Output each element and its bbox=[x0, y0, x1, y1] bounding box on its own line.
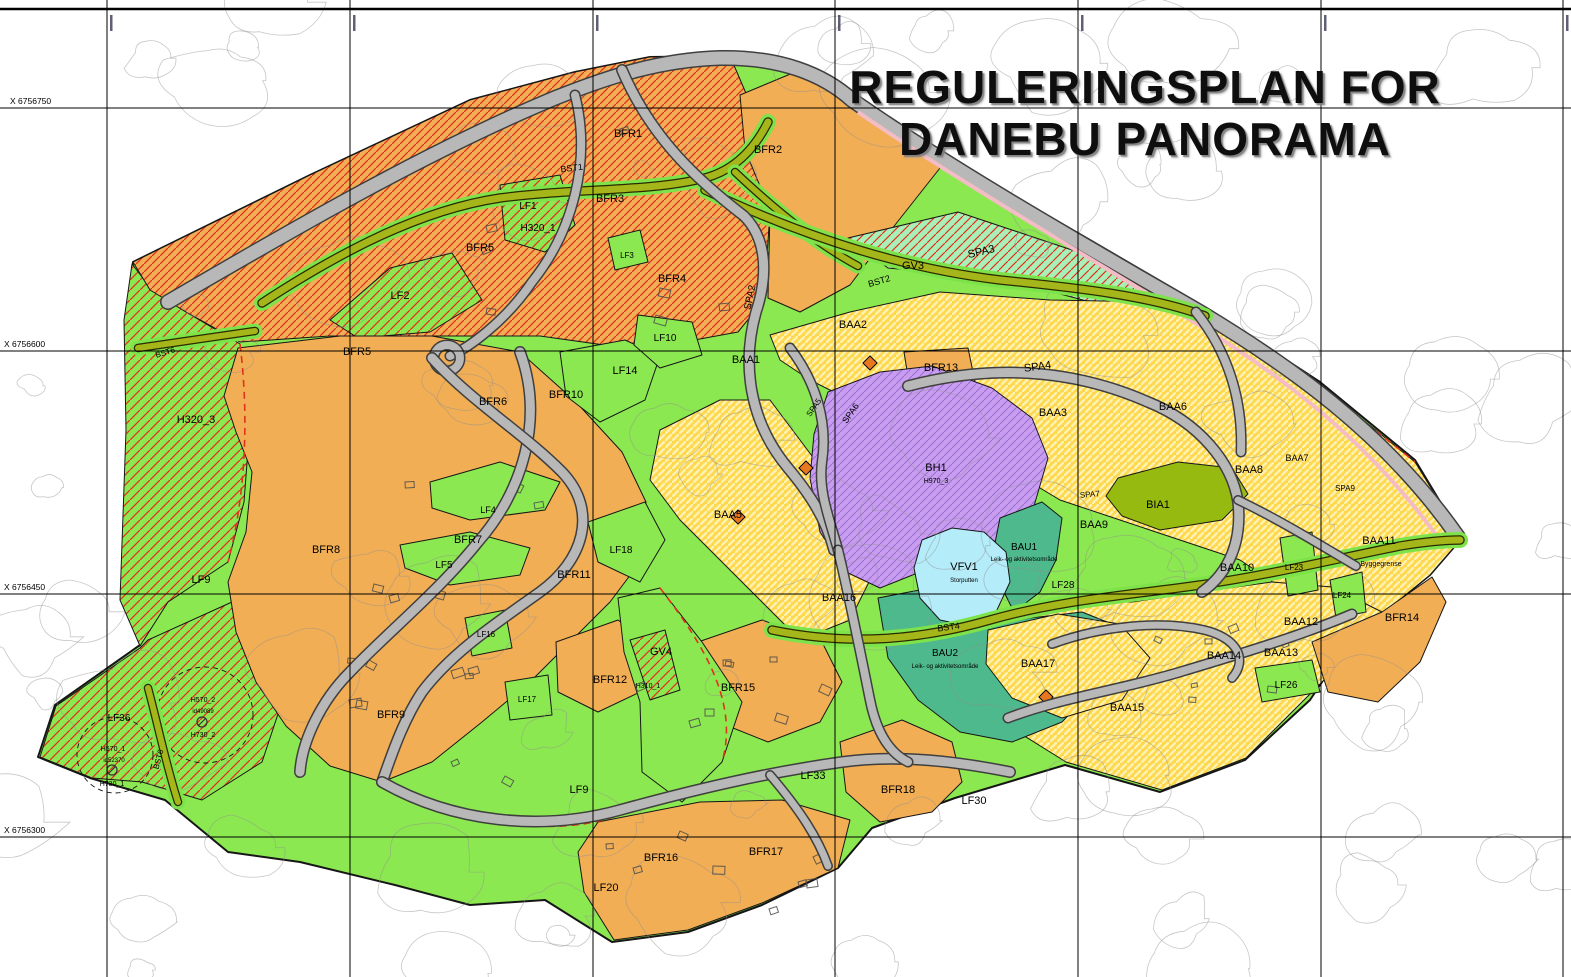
map-label: BFR5 bbox=[466, 242, 494, 254]
map-label: LF2 bbox=[391, 290, 410, 302]
map-label: id49089 bbox=[192, 709, 214, 715]
map-label: Storputten bbox=[950, 578, 978, 584]
map-label: BAA9 bbox=[1080, 519, 1108, 531]
map-label: H570_1 bbox=[101, 746, 126, 753]
map-label: BH1 bbox=[925, 462, 946, 474]
map-label: BAA7 bbox=[1285, 453, 1308, 463]
coordinate-tick bbox=[1081, 15, 1084, 31]
map-label: BAA13 bbox=[1264, 647, 1298, 659]
map-label: LF17 bbox=[518, 695, 537, 704]
map-label: LF1 bbox=[519, 201, 537, 212]
map-label: BFR2 bbox=[754, 144, 782, 156]
map-label: H320_3 bbox=[177, 414, 216, 426]
coordinate-tick bbox=[838, 15, 841, 31]
map-label: H730_1 bbox=[100, 781, 125, 788]
map-label: BAA14 bbox=[1207, 650, 1241, 662]
map-label: LF5 bbox=[435, 560, 453, 571]
coordinate-tick bbox=[1566, 15, 1569, 31]
map-label: BFR16 bbox=[644, 852, 678, 864]
map-label: LF10 bbox=[654, 333, 677, 344]
map-label: BAA8 bbox=[1235, 464, 1263, 476]
map-label: H730_2 bbox=[191, 732, 216, 739]
map-label: BFR13 bbox=[924, 362, 958, 374]
grid-coordinate-label: X 6756450 bbox=[4, 582, 45, 592]
map-canvas: X 6756750X 6756600X 6756450X 6756300 BFR… bbox=[0, 0, 1571, 977]
map-label: LF33 bbox=[800, 770, 825, 782]
map-label: BAA17 bbox=[1021, 658, 1055, 670]
map-label: Byggegrense bbox=[1360, 561, 1401, 568]
grid-coordinate-label: X 6756300 bbox=[4, 825, 45, 835]
map-label: BFR14 bbox=[1385, 612, 1419, 624]
map-label: BFR7 bbox=[454, 534, 482, 546]
map-label: BAA3 bbox=[1039, 407, 1067, 419]
coordinate-tick bbox=[1324, 15, 1327, 31]
map-label: BAU2 bbox=[932, 648, 959, 659]
map-label: BFR15 bbox=[721, 682, 755, 694]
map-label: LF18 bbox=[610, 545, 633, 556]
map-label: BFR5 bbox=[343, 346, 371, 358]
map-label: BAA5 bbox=[714, 509, 742, 521]
map-label: LF14 bbox=[612, 365, 637, 377]
map-label: LF16 bbox=[477, 630, 496, 639]
map-label: BAA11 bbox=[1362, 535, 1395, 547]
map-label: H570_2 bbox=[191, 697, 216, 704]
map-label: LF4 bbox=[480, 505, 496, 515]
map-label: BFR3 bbox=[596, 193, 624, 205]
map-label: BFR11 bbox=[557, 569, 590, 581]
map-label: LF9 bbox=[192, 574, 211, 586]
map-label: BFR18 bbox=[881, 784, 915, 796]
map-label: LF26 bbox=[1275, 680, 1298, 691]
map-label: BFR8 bbox=[312, 544, 340, 556]
map-label: BAA12 bbox=[1284, 616, 1318, 628]
map-label: LF23 bbox=[1285, 563, 1304, 572]
map-label: BIA1 bbox=[1146, 499, 1170, 511]
map-label: BFR12 bbox=[593, 674, 627, 686]
map-label: H970_3 bbox=[924, 478, 949, 485]
map-label: BFR1 bbox=[614, 128, 642, 140]
map-label: BAA15 bbox=[1110, 702, 1144, 714]
map-label: LF3 bbox=[620, 251, 634, 260]
map-label: BAA6 bbox=[1159, 401, 1187, 413]
coordinate-tick bbox=[596, 15, 599, 31]
map-label: BFR9 bbox=[377, 709, 405, 721]
grid-coordinate-label: X 6756750 bbox=[10, 96, 51, 106]
map-label: BAA1 bbox=[732, 354, 760, 366]
map-label: VFV1 bbox=[950, 561, 978, 573]
map-label: BAU1 bbox=[1011, 542, 1038, 553]
map-label: BFR17 bbox=[749, 846, 783, 858]
map-label: BFR10 bbox=[549, 389, 583, 401]
map-label: BAA16 bbox=[822, 592, 856, 604]
map-label: id52370 bbox=[103, 758, 125, 764]
map-label: SPA9 bbox=[1335, 484, 1355, 493]
map-label: BAA2 bbox=[839, 319, 867, 331]
coordinate-tick bbox=[110, 15, 113, 31]
map-label: H320_1 bbox=[520, 223, 555, 234]
map-label: GV3 bbox=[902, 260, 924, 272]
map-label: BAA10 bbox=[1220, 562, 1254, 574]
map-label: SPA7 bbox=[1079, 489, 1100, 500]
map-label: LF30 bbox=[961, 795, 986, 807]
map-stage: X 6756750X 6756600X 6756450X 6756300 BFR… bbox=[0, 0, 1571, 977]
map-label: LF9 bbox=[570, 784, 589, 796]
grid-coordinate-label: X 6756600 bbox=[4, 339, 45, 349]
map-label: LF36 bbox=[108, 713, 131, 724]
map-label: LF20 bbox=[593, 882, 618, 894]
map-label: H310_1 bbox=[636, 683, 661, 690]
map-label: Leik- og aktivitetsområde bbox=[912, 663, 979, 670]
map-label: GV4 bbox=[650, 646, 672, 658]
map-label: Leik- og aktivitetsområde bbox=[991, 556, 1058, 563]
map-label: LF28 bbox=[1052, 580, 1075, 591]
map-label: LF24 bbox=[1333, 591, 1352, 600]
coordinate-tick bbox=[353, 15, 356, 31]
map-label: BFR6 bbox=[479, 396, 507, 408]
map-label: BFR4 bbox=[658, 273, 686, 285]
